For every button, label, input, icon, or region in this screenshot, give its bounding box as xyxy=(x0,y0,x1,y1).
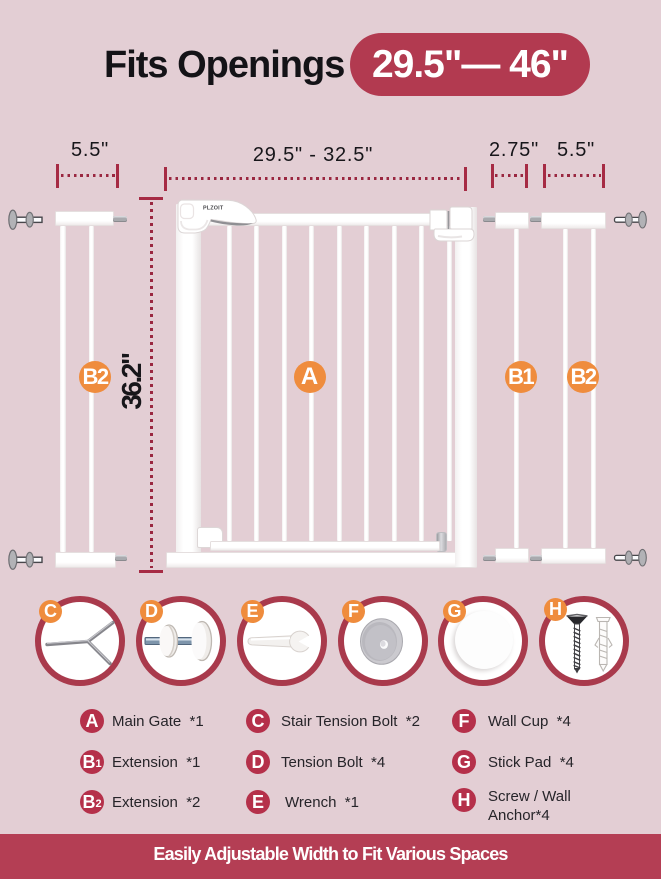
svg-text:PLZOIT: PLZOIT xyxy=(203,206,224,212)
